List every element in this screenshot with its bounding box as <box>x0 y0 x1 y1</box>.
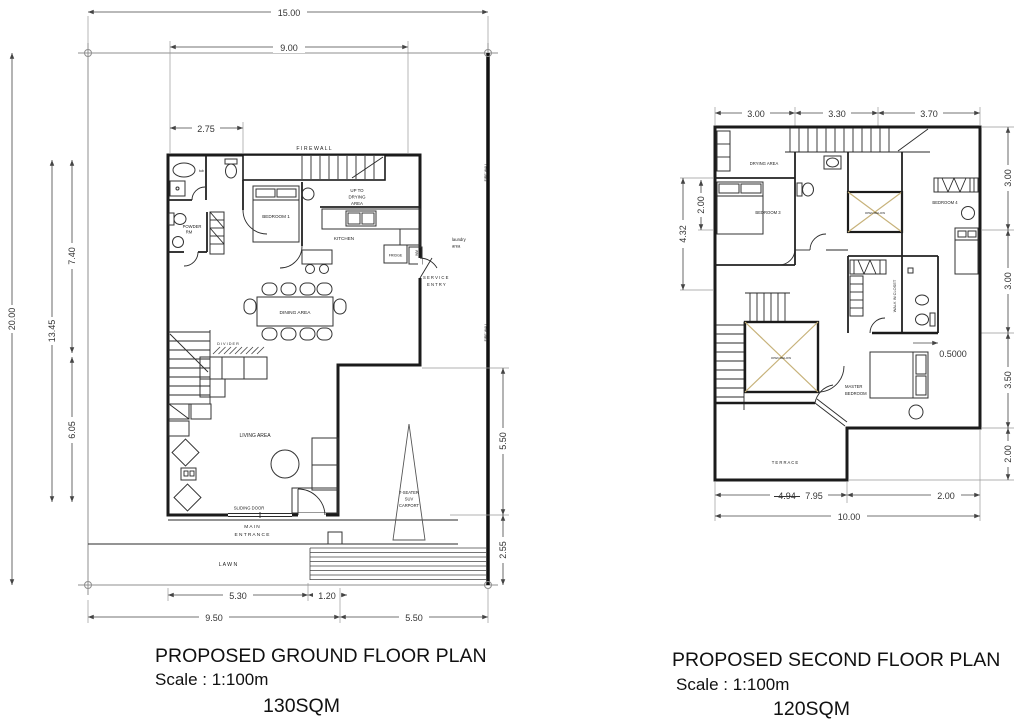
dim2-left-outer: 4.32 <box>678 225 688 243</box>
washing-machine-label: WM <box>415 250 419 256</box>
dim2-top-2: 3.30 <box>828 109 846 119</box>
second-floor-plan: 3.00 3.30 3.70 4.32 2.00 <box>676 107 1015 522</box>
service-entry-label-2: E N T R Y <box>427 282 446 287</box>
firewall-side-label-lower: FIRE WALL <box>484 323 488 342</box>
dim-left-overall: 20.00 <box>7 308 17 331</box>
second-floor-area: 120SQM <box>773 698 850 720</box>
laundry-area-label-2: area <box>452 244 461 249</box>
dim-top-inner: 9.00 <box>280 43 298 53</box>
firewall-label: F I R E W A L L <box>296 146 331 152</box>
terrace-label: T E R R A C E <box>772 460 799 465</box>
dim-bottom-lawn: 5.30 <box>229 591 247 601</box>
void-small-label: OPEN BELOW <box>865 211 885 215</box>
dim-left-building: 13.45 <box>47 320 57 343</box>
dim2-right-3: 3.50 <box>1003 371 1013 389</box>
carport-label-1: 7-SEATER <box>399 490 419 495</box>
service-entry-label-1: S E R V I C E <box>423 275 449 280</box>
dim2-left-inner: 2.00 <box>696 196 706 214</box>
dim-top-overall: 15.00 <box>278 8 301 18</box>
dim-left-lower: 6.05 <box>67 421 77 439</box>
carport-label-3: CARPORT <box>399 503 419 508</box>
dim2-right-1: 3.00 <box>1003 169 1013 187</box>
main-entrance-label-1: M A I N <box>244 524 260 530</box>
dim2-bottom-main: 7.95 <box>805 491 823 501</box>
living-area-label: LIVING AREA <box>239 433 271 439</box>
master-bedroom-label-2: BEDROOM <box>845 391 867 396</box>
dim-bottom-walk: 1.20 <box>318 591 336 601</box>
void-large-label: OPEN BELOW <box>771 356 791 360</box>
dim2-top-3: 3.70 <box>920 109 938 119</box>
sliding-door-label: SLIDING DOOR <box>234 506 264 511</box>
service-entry: S E R V I C E E N T R Y laundry area <box>420 237 467 287</box>
up-to-drying-line1: UP TO <box>350 188 364 193</box>
dim2-right-2: 3.00 <box>1003 272 1013 290</box>
lawn-label: L A W N <box>219 562 238 568</box>
second-floor-title: PROPOSED SECOND FLOOR PLAN <box>672 649 1000 671</box>
master-bedroom-label-1: MASTER <box>845 384 862 389</box>
floor-plan-sheet: 15.00 9.00 2.75 20.00 13.45 7.40 6.05 <box>0 0 1023 722</box>
ground-floor-area: 130SQM <box>263 695 340 717</box>
walk-in-closet-label: WALK IN CLOSET <box>892 279 897 312</box>
up-to-drying-line3: AREA <box>351 201 363 206</box>
dim-right-lower: 2.55 <box>498 541 508 559</box>
ground-floor-plan: 15.00 9.00 2.75 20.00 13.45 7.40 6.05 <box>5 6 510 623</box>
main-entrance-label-2: E N T R A N C E <box>234 532 269 538</box>
up-to-drying-line2: DRYING <box>349 195 367 200</box>
kitchen-label: KITCHEN <box>334 236 354 241</box>
title-block: PROPOSED GROUND FLOOR PLAN Scale : 1:100… <box>155 645 1000 720</box>
bedroom4-label: BEDROOM 4 <box>932 200 958 205</box>
driveway-hatch <box>310 548 487 580</box>
dim-left-upper: 7.40 <box>67 247 77 265</box>
dim2-offset: 0.5000 <box>939 349 967 359</box>
void-open-below: OPEN BELOW <box>745 322 818 392</box>
carport-label-2: SUV <box>405 497 414 502</box>
dim-bottom-right: 5.50 <box>405 613 423 623</box>
laundry-area-label-1: laundry <box>452 237 467 242</box>
powder-room-label-1: POWDER <box>183 224 202 229</box>
void-small: OPEN BELOW <box>848 192 902 232</box>
dim2-bottom-struck: 4.94 <box>778 491 796 501</box>
carport: 7-SEATER SUV CARPORT <box>393 424 425 540</box>
ground-floor-title: PROPOSED GROUND FLOOR PLAN <box>155 645 487 667</box>
tub-label: tub <box>199 169 204 173</box>
powder-room-label-2: RM <box>186 230 193 235</box>
dim2-top-1: 3.00 <box>747 109 765 119</box>
divider-label: D I V I D E R <box>217 342 239 346</box>
dim2-bottom-overall: 10.00 <box>838 512 861 522</box>
ground-floor-scale: Scale : 1:100m <box>155 670 268 689</box>
bedroom1-label: BEDROOM 1 <box>262 214 290 219</box>
dim-bath-width: 2.75 <box>197 124 215 134</box>
firewall-band: F I R E W A L L <box>243 146 385 180</box>
bedroom3-label: BEDROOM 3 <box>755 210 781 215</box>
dining-area-label: DINING AREA <box>280 310 312 316</box>
fridge-label: FRIDGE <box>389 254 403 258</box>
dim-bottom-left: 9.50 <box>205 613 223 623</box>
second-floor-scale: Scale : 1:100m <box>676 675 789 694</box>
firewall-side-label-upper: FIRE WALL <box>484 163 488 182</box>
dim2-right-4: 2.00 <box>1003 445 1013 463</box>
dim-right-upper: 5.50 <box>498 432 508 450</box>
floor-plan-canvas: 15.00 9.00 2.75 20.00 13.45 7.40 6.05 <box>0 0 1023 722</box>
drying-area-label: DRYING AREA <box>750 161 779 166</box>
dim2-bottom-right: 2.00 <box>937 491 955 501</box>
